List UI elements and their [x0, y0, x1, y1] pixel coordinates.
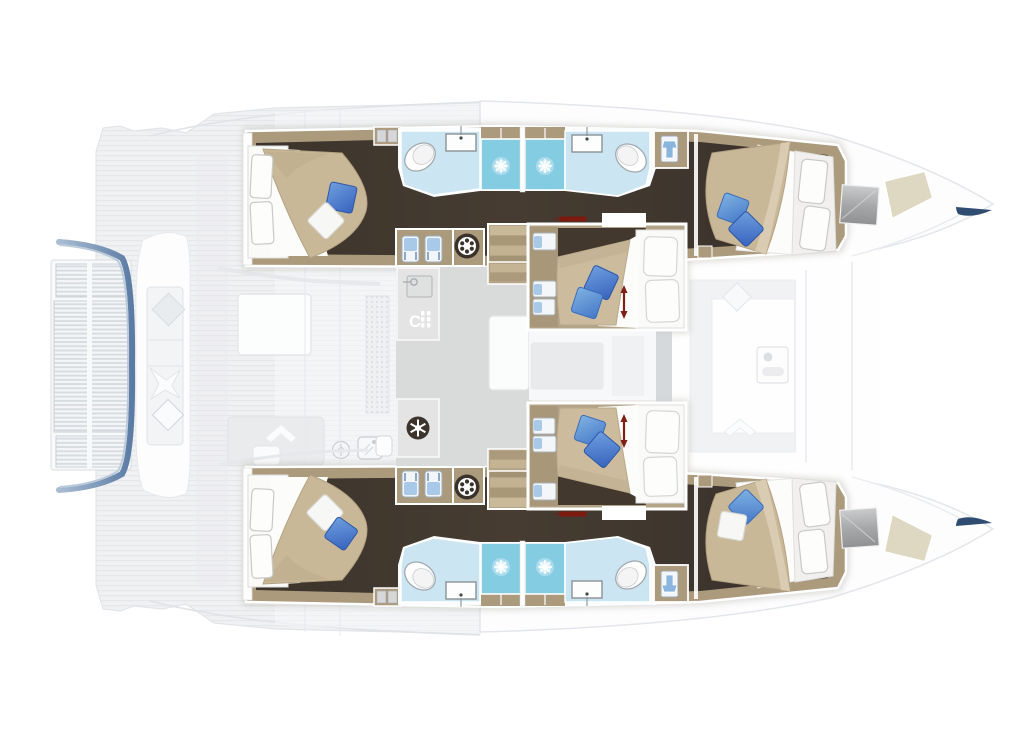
- svg-text:C: C: [409, 313, 421, 331]
